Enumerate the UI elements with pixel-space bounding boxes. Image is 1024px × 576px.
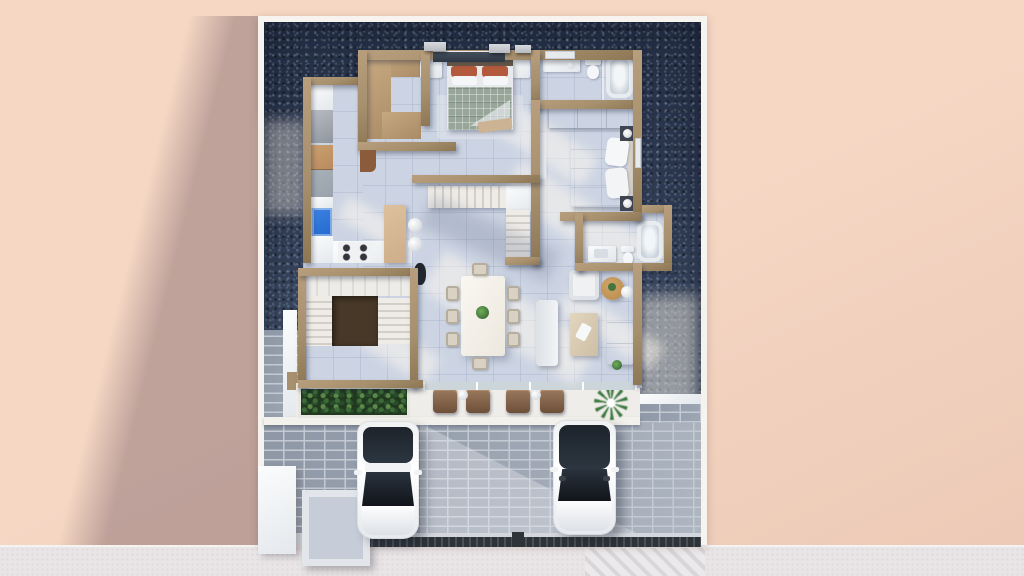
- wall-bedroom2-top: [531, 100, 642, 109]
- terrace-side-table: [531, 390, 541, 400]
- stairwell-void: [332, 296, 378, 346]
- car-hood: [557, 501, 612, 531]
- bedroom2-lamp: [623, 199, 632, 208]
- living-sofa: [607, 301, 634, 365]
- bedroom2-mirror: [539, 133, 546, 179]
- car-left: [357, 421, 419, 539]
- bath-top-window: [545, 51, 575, 59]
- dining-chair: [446, 309, 459, 324]
- master-pillow-white: [483, 76, 508, 85]
- terrace-chair: [506, 389, 530, 413]
- kitchen-counter-mid: [311, 197, 333, 208]
- dining-chair-head: [472, 263, 488, 276]
- kitchen-cabinet-tan: [311, 145, 333, 170]
- bedroom2-lamp: [623, 129, 632, 138]
- side-walkway: [640, 394, 701, 404]
- car-hood: [361, 506, 415, 535]
- ac-unit: [424, 42, 446, 51]
- wall-hall-bottom: [505, 257, 540, 265]
- bath-right-bathtub: [637, 221, 663, 262]
- ac-unit: [515, 45, 531, 53]
- crosswalk-stripes: [585, 548, 705, 576]
- dining-chair: [507, 286, 520, 301]
- wall-bath-right-right: [664, 205, 672, 271]
- dining-chair-head: [472, 357, 488, 370]
- building-shadow: [0, 16, 262, 545]
- stairs-landing: [506, 186, 532, 212]
- kitchen-cabinet-gray: [311, 170, 333, 197]
- terrace-chair: [466, 389, 490, 413]
- living-side-table: [621, 286, 633, 298]
- car-rear-glass: [559, 425, 610, 469]
- wall-master-left: [421, 50, 430, 126]
- wall-stairs-top: [412, 175, 540, 183]
- car-mirror: [354, 470, 362, 475]
- wall-living-right: [633, 263, 642, 385]
- ac-unit: [489, 44, 510, 53]
- street-strip: [0, 545, 1024, 576]
- wall-stairhall-left: [298, 268, 306, 388]
- dining-bench: [536, 300, 558, 366]
- bath-top-divider: [602, 57, 604, 100]
- bedroom2-wardrobe: [548, 108, 634, 128]
- wall-bedroom2-bottom: [560, 212, 642, 221]
- stairhall-left-flight: [306, 296, 332, 346]
- car-mirror: [414, 470, 422, 475]
- bedroom2-pillow: [604, 167, 629, 199]
- bedroom2-pillow: [604, 137, 630, 168]
- car-headlight: [603, 476, 610, 481]
- kitchen-stool: [408, 218, 422, 232]
- terrace-side-table: [458, 390, 468, 400]
- left-boundary-wall: [283, 310, 297, 420]
- gas-cooktop: [338, 242, 372, 262]
- terrace-chair: [540, 389, 564, 413]
- wall-right-upper: [633, 50, 642, 220]
- wall-closet-left: [358, 50, 367, 150]
- kitchen-island: [384, 205, 406, 263]
- closet-unit-bottom: [382, 112, 421, 139]
- car-roof: [365, 463, 411, 472]
- floor-plan-render: [0, 0, 1024, 576]
- gravel-sunwash-left: [264, 120, 308, 215]
- wall-stairhall-top: [298, 268, 418, 276]
- bath-top-toilet-bowl: [587, 65, 599, 79]
- stairhall-right-flight: [378, 298, 410, 344]
- kitchen-stool: [408, 237, 422, 251]
- stairhall-panels: [306, 276, 410, 296]
- wall-kitchen-left: [303, 77, 311, 263]
- kitchen-counter-top: [311, 84, 333, 110]
- dining-chair: [446, 332, 459, 347]
- living-round-table-plant: [608, 283, 616, 291]
- bath-right-basin: [594, 249, 608, 258]
- living-armchair: [569, 270, 599, 300]
- wall-house-bottom-left: [298, 380, 423, 388]
- gate-post: [512, 532, 524, 547]
- car-right: [553, 420, 616, 535]
- closet-door-leaf: [360, 150, 376, 172]
- wall-bath-right-bottom: [575, 263, 672, 271]
- living-small-plant: [612, 360, 622, 370]
- sliding-glass-doors: [423, 382, 637, 390]
- car-windshield: [558, 469, 611, 501]
- car-mirror: [550, 467, 558, 472]
- bath-top-basin: [567, 61, 575, 69]
- dining-chair: [446, 286, 459, 301]
- dining-plant-centerpiece: [476, 306, 489, 319]
- dining-chair: [507, 332, 520, 347]
- car-rear-glass: [363, 427, 413, 463]
- bath-top-bathtub: [606, 56, 633, 98]
- bedroom2-window: [635, 138, 641, 168]
- utility-slab: [258, 466, 296, 554]
- terrace-chair: [433, 389, 457, 413]
- kitchen-counter-low: [311, 236, 333, 263]
- hedge-planter: [298, 386, 410, 418]
- car-headlight: [559, 476, 566, 481]
- car-mirror: [611, 467, 619, 472]
- wall-stairhall-right: [410, 268, 418, 388]
- wall-kitchen-top: [303, 77, 361, 85]
- palm-plant: [594, 386, 628, 420]
- car-windshield: [362, 472, 414, 506]
- dining-chair: [507, 309, 520, 324]
- kitchen-fridge: [311, 110, 333, 143]
- kitchen-sink-blue: [312, 208, 332, 236]
- master-pillow-white: [452, 76, 477, 85]
